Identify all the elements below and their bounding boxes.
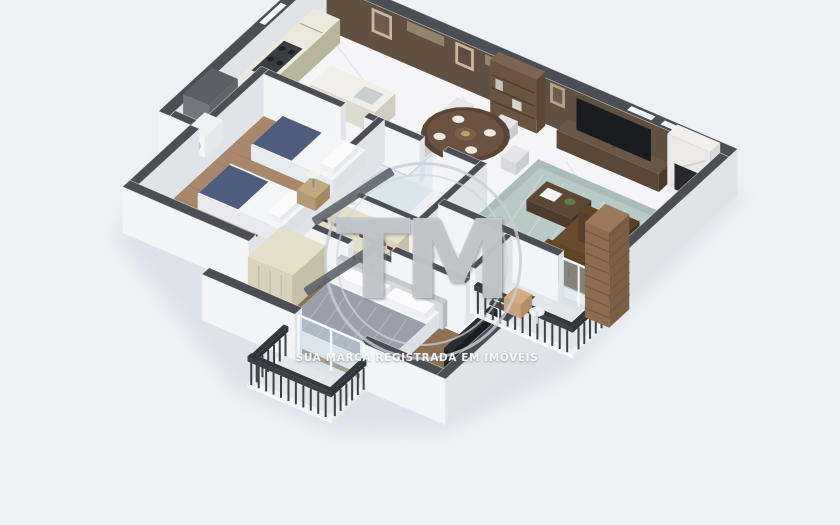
floor-plan-render: TM SUA MARCA REGISTRADA EM IMÓVEIS (0, 0, 840, 525)
apartment-isometric-scene (0, 0, 840, 525)
